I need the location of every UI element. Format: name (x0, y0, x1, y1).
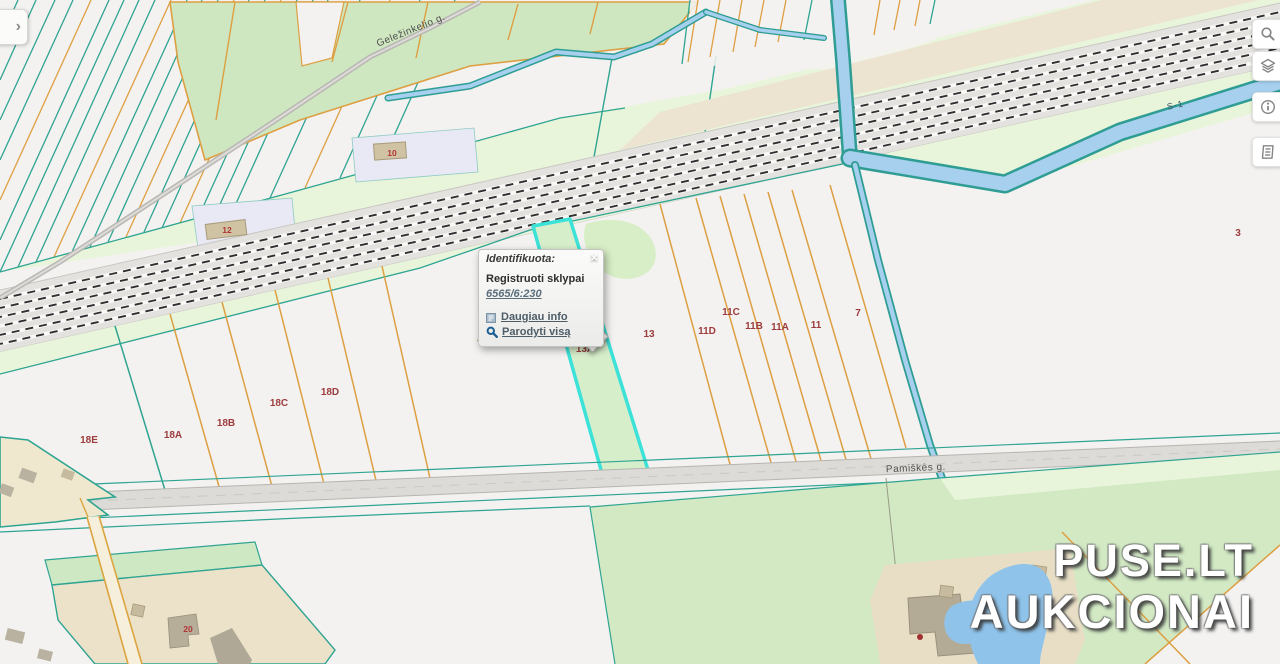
popup-title: Identifikuota: (486, 253, 555, 265)
parcel-label-11D: 11D (698, 326, 716, 337)
magnifier-icon (486, 326, 498, 338)
parcel-label-11B: 11B (745, 321, 763, 332)
search-icon (1260, 26, 1276, 42)
parcel-label-18B: 18B (217, 418, 235, 429)
info-icon (1260, 99, 1276, 115)
building-label-12: 12 (222, 225, 232, 235)
more-info-link[interactable]: Daugiau info (501, 311, 568, 323)
parcel-label-18D: 18D (321, 387, 339, 398)
parcel-label-18E: 18E (80, 435, 98, 446)
feature-code-link[interactable]: 6565/6:230 (486, 288, 542, 300)
show-all-row[interactable]: Parodyti visą (486, 326, 596, 338)
more-info-row[interactable]: Daugiau info (486, 311, 596, 323)
parcel-label-18A: 18A (164, 430, 182, 441)
popup-body: Registruoti sklypai 6565/6:230 Daugiau i… (479, 267, 603, 346)
info-button[interactable] (1252, 92, 1280, 122)
map-canvas[interactable]: 18E 18A 18B 18C 18D 13A 13 11D 11C 11B 1… (0, 0, 1280, 664)
building-label-10: 10 (387, 148, 397, 158)
show-all-link[interactable]: Parodyti visą (502, 326, 570, 338)
search-button[interactable] (1252, 19, 1280, 49)
identify-popup[interactable]: Identifikuota: × Registruoti sklypai 656… (478, 249, 604, 347)
legend-icon (1260, 144, 1276, 160)
popup-layer-title: Registruoti sklypai (486, 273, 596, 285)
building-label-20: 20 (183, 624, 193, 634)
legend-button[interactable] (1252, 137, 1280, 167)
popup-header: Identifikuota: × (479, 250, 603, 267)
parcel-label-11C: 11C (722, 307, 740, 318)
sidebar-expand-button[interactable]: › (0, 9, 28, 45)
layers-icon (1260, 58, 1276, 74)
parcel-label-18C: 18C (270, 398, 288, 409)
document-edit-icon (486, 312, 497, 323)
cadastral-map[interactable]: 18E 18A 18B 18C 18D 13A 13 11D 11C 11B 1… (0, 0, 1280, 664)
parcel-label-3: 3 (1235, 228, 1241, 239)
parcel-label-11: 11 (811, 320, 822, 331)
parcel-label-13: 13 (643, 329, 655, 340)
close-icon[interactable]: × (590, 251, 598, 264)
layers-button[interactable] (1252, 51, 1280, 81)
parcel-label-11A: 11A (771, 322, 789, 333)
chevron-right-icon: › (16, 18, 21, 36)
parcel-label-7: 7 (855, 308, 861, 319)
